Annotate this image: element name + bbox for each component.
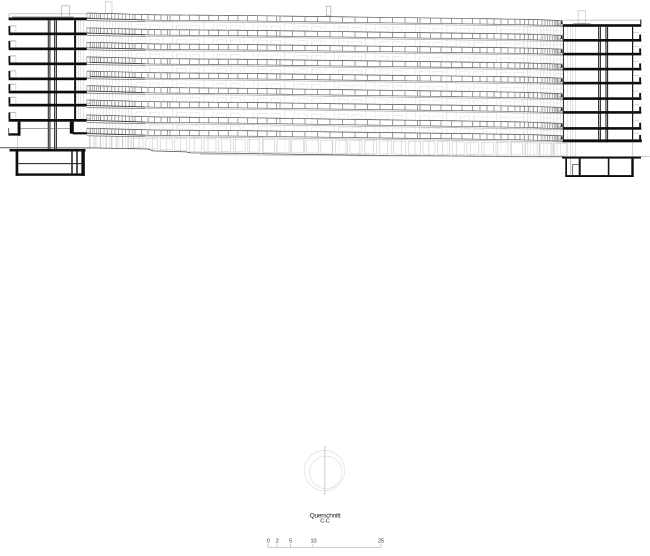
svg-text:25: 25 [378, 539, 384, 545]
svg-text:0: 0 [267, 539, 270, 545]
svg-text:2: 2 [276, 539, 279, 545]
svg-text:5: 5 [289, 539, 292, 545]
svg-text:10: 10 [310, 539, 316, 545]
svg-text:C-C: C-C [320, 519, 330, 525]
